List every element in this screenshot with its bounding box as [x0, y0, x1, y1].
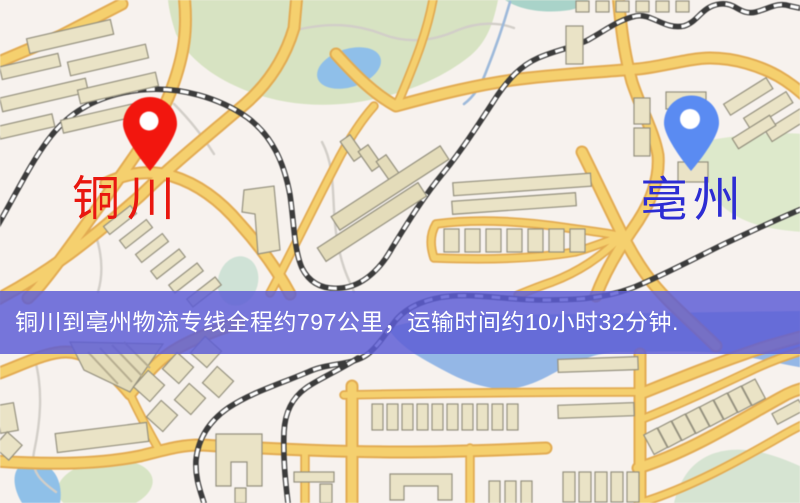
origin-pin-hole — [140, 112, 159, 131]
destination-city-label: 亳州 — [640, 177, 746, 225]
map-screenshot: 铜川 亳州 铜川到亳州物流专线全程约797公里，运输时间约10小时32分钟. — [0, 0, 800, 503]
origin-city-label: 铜川 — [72, 176, 182, 224]
map-canvas — [0, 0, 800, 503]
route-info-text: 铜川到亳州物流专线全程约797公里，运输时间约10小时32分钟. — [15, 291, 679, 354]
route-info-banner: 铜川到亳州物流专线全程约797公里，运输时间约10小时32分钟. — [0, 291, 800, 354]
destination-pin-hole — [680, 109, 700, 129]
